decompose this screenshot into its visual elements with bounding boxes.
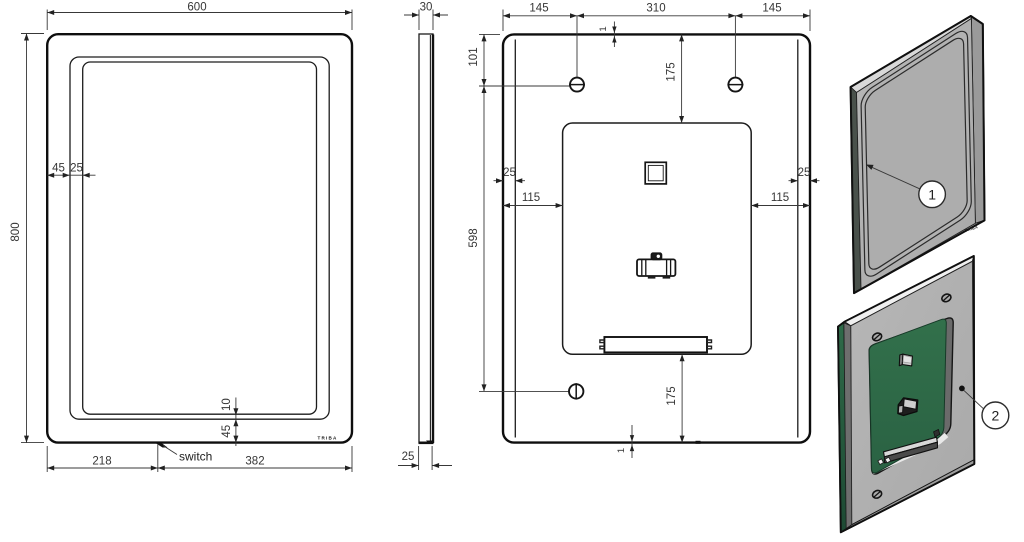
svg-text:101: 101 (468, 47, 480, 66)
svg-text:600: 600 (187, 2, 206, 14)
svg-text:45: 45 (52, 163, 65, 175)
svg-text:382: 382 (245, 456, 264, 468)
svg-text:1: 1 (928, 186, 936, 202)
svg-text:115: 115 (522, 192, 540, 204)
svg-text:10: 10 (221, 398, 233, 411)
svg-text:1: 1 (598, 26, 609, 31)
svg-text:598: 598 (468, 228, 480, 247)
svg-text:175: 175 (666, 386, 678, 405)
svg-text:25: 25 (798, 167, 811, 179)
svg-text:800: 800 (10, 222, 22, 241)
svg-text:115: 115 (771, 192, 789, 204)
svg-text:30: 30 (420, 2, 433, 14)
svg-text:175: 175 (666, 62, 678, 81)
svg-text:TRIBA: TRIBA (317, 436, 337, 441)
svg-text:145: 145 (529, 3, 548, 15)
svg-text:145: 145 (762, 3, 781, 15)
svg-text:2: 2 (992, 407, 1000, 423)
svg-text:25: 25 (503, 167, 516, 179)
svg-text:310: 310 (646, 3, 665, 15)
svg-text:25: 25 (402, 451, 415, 463)
svg-text:switch: switch (179, 450, 212, 464)
svg-text:45: 45 (221, 425, 233, 438)
svg-text:25: 25 (70, 163, 83, 175)
svg-text:1: 1 (616, 448, 627, 453)
svg-text:218: 218 (92, 456, 111, 468)
